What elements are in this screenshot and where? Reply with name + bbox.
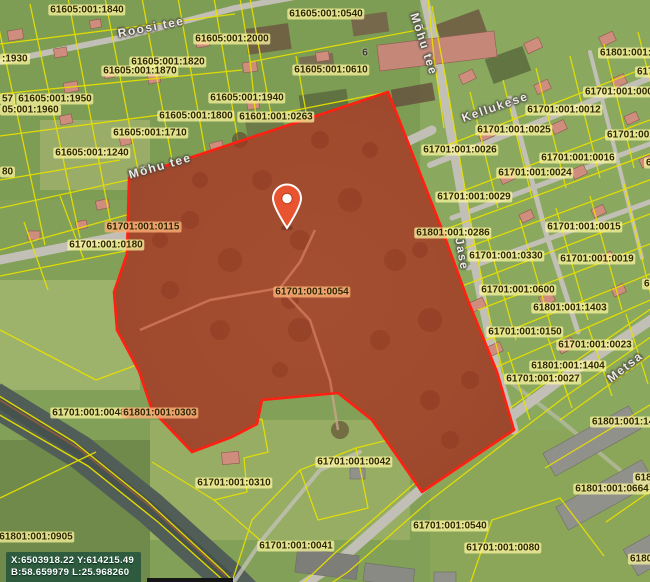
aerial-basemap (0, 0, 650, 582)
coordinate-readout: X:6503918.22 Y:614215.49 B:58.659979 L:2… (6, 552, 141, 582)
coordinate-xy: X:6503918.22 Y:614215.49 (11, 555, 134, 567)
location-pin[interactable] (267, 183, 307, 233)
cadastral-map-canvas[interactable]: 61605:001:184061605:001:054061605:001:20… (0, 0, 650, 582)
cut-off-ui-element (147, 578, 233, 582)
coordinate-bl: B:58.659979 L:25.968260 (11, 567, 134, 579)
